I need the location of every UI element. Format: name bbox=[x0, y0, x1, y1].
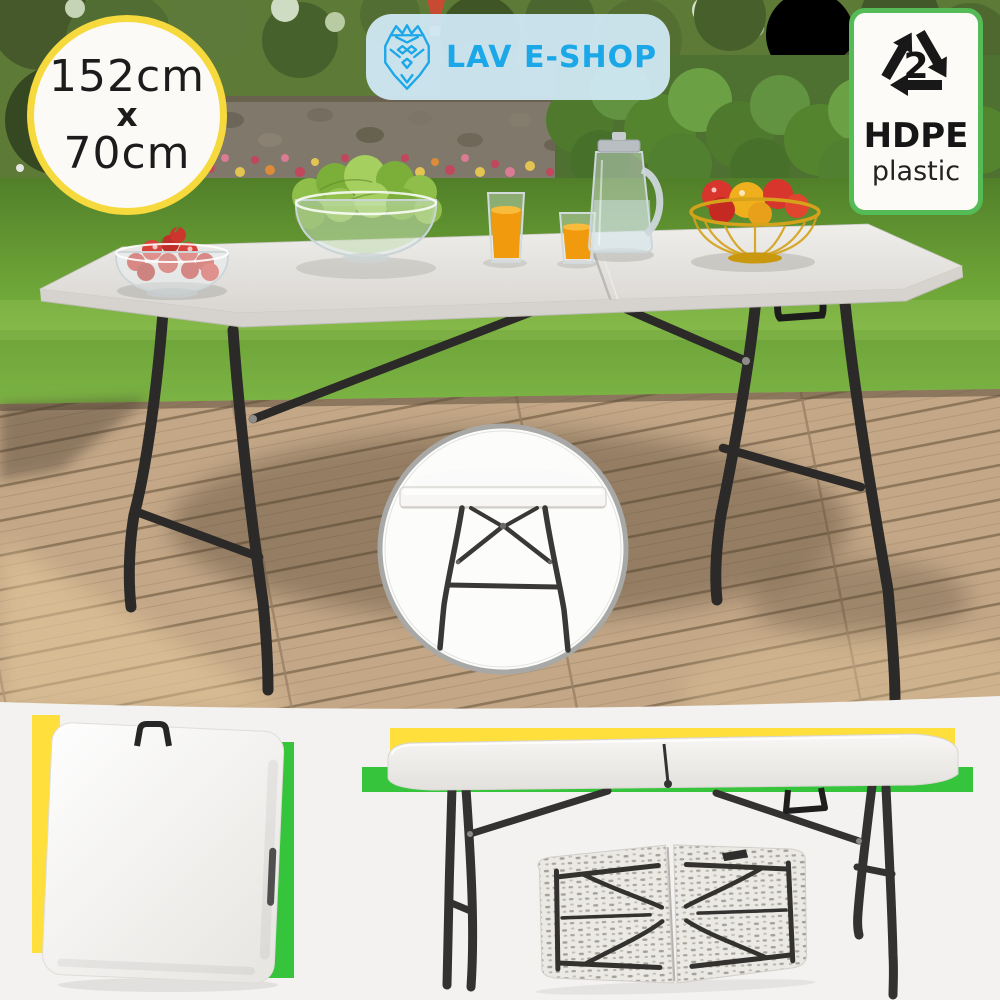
shop-logo: LAV E-SHOP bbox=[366, 14, 670, 100]
dimensions-badge: 152cm x 70cm bbox=[27, 15, 227, 215]
lion-icon bbox=[378, 22, 436, 92]
table-side-view-inset bbox=[380, 426, 626, 672]
juice-glass-large bbox=[488, 193, 524, 262]
shop-name: LAV E-SHOP bbox=[446, 40, 657, 75]
dimension-depth: 70cm bbox=[63, 131, 190, 177]
material-name: HDPE bbox=[864, 118, 969, 155]
dimension-separator: x bbox=[116, 99, 137, 130]
product-listing-image: 152cm x 70cm LAV E-SHOP bbox=[0, 0, 1000, 1000]
assembled-tabletop bbox=[388, 734, 958, 790]
material-subtitle: plastic bbox=[872, 156, 960, 187]
dimension-width: 152cm bbox=[49, 54, 205, 100]
product-views-panel bbox=[0, 695, 1000, 1000]
recycling-hdpe-icon: 2 bbox=[868, 21, 964, 117]
resin-code-text: 2 bbox=[903, 46, 928, 87]
outdoor-garden-photo: 152cm x 70cm LAV E-SHOP bbox=[0, 0, 1000, 712]
folded-table-view bbox=[32, 715, 294, 992]
material-badge: 2 HDPE plastic bbox=[849, 8, 983, 215]
